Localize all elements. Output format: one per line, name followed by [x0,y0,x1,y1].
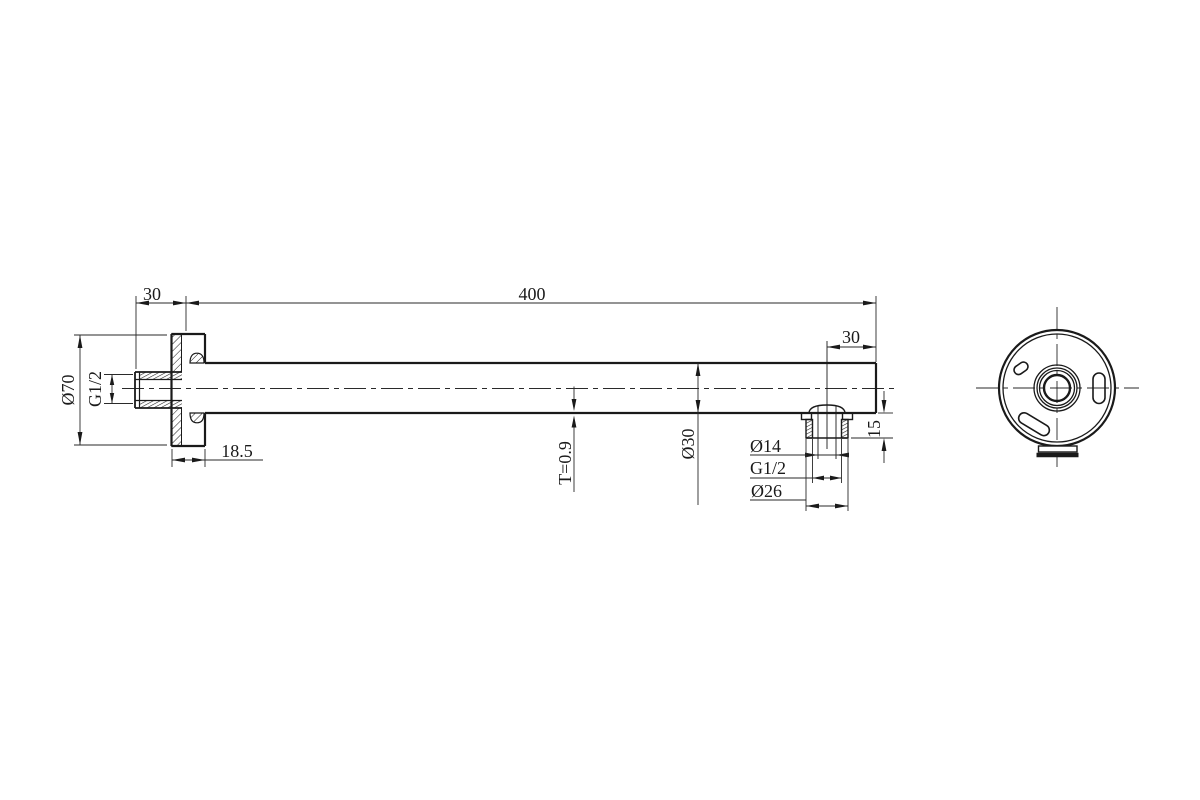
dim-label-outlet-orifice: Ø14 [750,436,781,456]
dim-label-outlet-offset: 30 [842,327,860,347]
dim-label-outlet-thread: G1/2 [750,458,786,478]
dimensions: 30 400 30 Ø70 G1/2 [58,284,893,511]
dim-outlet-orifice: Ø14 [750,436,849,457]
dim-outlet-stub-height: 15 [851,391,893,463]
drawing-canvas: 30 400 30 Ø70 G1/2 [0,0,1200,800]
thread-runout-bottom [190,413,204,423]
dim-inlet-stub-length-and-arm-length: 30 400 [136,284,876,369]
inlet-stub [135,372,182,408]
dim-flange-diameter: Ø70 [58,335,167,445]
outlet-nozzle [802,341,853,459]
outlet-stub-end-view [1037,446,1079,455]
arm-tube [205,363,876,413]
dim-label-outlet-outer-diameter: Ø26 [751,481,782,501]
dim-outlet-offset: 30 [827,327,876,349]
engineering-drawing: 30 400 30 Ø70 G1/2 [0,0,1200,800]
dim-label-inlet-stub-length: 30 [143,284,161,304]
dim-inlet-thread: G1/2 [85,371,133,407]
dim-label-flange-depth: 18.5 [221,441,253,461]
dim-label-outlet-stub-height: 15 [864,420,884,438]
dim-wall-thickness: T=0.9 [555,387,576,493]
dim-tube-diameter: Ø30 [678,363,700,505]
dim-label-flange-diameter: Ø70 [58,375,78,406]
dim-label-arm-length: 400 [519,284,546,304]
thread-runout-top [190,353,204,363]
slot-upper-left [1012,360,1029,376]
dim-label-tube-diameter: Ø30 [678,429,698,460]
dim-label-inlet-thread: G1/2 [85,371,105,407]
wall-flange [172,334,206,446]
dim-label-wall-thickness: T=0.9 [555,441,575,485]
mounting-slots [1012,360,1105,437]
end-view [976,307,1139,467]
